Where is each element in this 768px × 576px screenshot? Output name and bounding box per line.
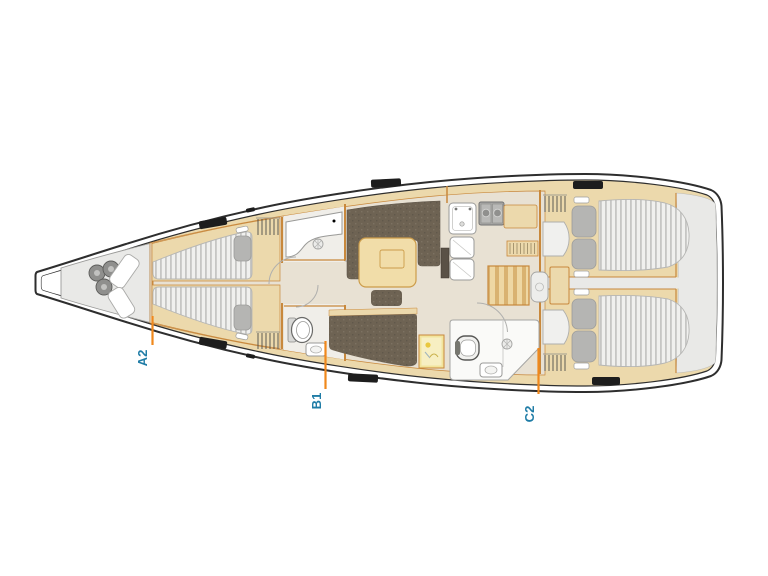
nav-desk <box>550 267 569 304</box>
pillow <box>572 331 596 362</box>
label-text-a2: A2 <box>135 350 150 367</box>
reading-light <box>574 289 589 295</box>
label-text-b1: B1 <box>309 393 324 410</box>
faucet-dot <box>333 220 336 223</box>
chart-mark <box>425 342 430 347</box>
toilet-bowl <box>461 340 476 356</box>
deck-hatch-icon <box>348 373 378 383</box>
stove-burner <box>482 209 490 217</box>
deck-hatch-icon <box>573 181 603 189</box>
double-berth-mattress <box>599 295 689 366</box>
shower-drain-icon <box>502 339 512 349</box>
sink-basin <box>311 346 322 353</box>
label-text-c2: C2 <box>522 406 537 423</box>
toilet-lid-mark <box>455 341 460 355</box>
companionway-steps <box>488 266 529 305</box>
stove-burner <box>494 209 502 217</box>
faucet-dot <box>469 208 472 211</box>
deck-hatch-icon <box>371 178 401 188</box>
vanity-seat <box>543 310 569 344</box>
salon-stool <box>371 290 402 306</box>
pillow <box>572 299 596 329</box>
deck-hatch-icon <box>592 377 620 385</box>
pillow <box>572 206 596 237</box>
pillow <box>234 305 251 330</box>
vanity-seat <box>543 222 569 256</box>
galley-cabinet-dark <box>441 248 449 278</box>
pillow <box>572 239 596 269</box>
reading-light <box>574 271 589 277</box>
pillow <box>234 236 251 261</box>
engine-vent <box>507 241 538 256</box>
shower-drain-icon <box>313 239 323 249</box>
reading-light <box>574 197 589 203</box>
nav-seat <box>531 272 548 302</box>
drain-dot <box>460 222 464 226</box>
galley-counter <box>504 205 537 228</box>
deck-plan-svg: A2 B1 C2 <box>0 0 768 576</box>
double-berth-mattress <box>599 199 689 270</box>
faucet-dot <box>455 208 458 211</box>
salon-table <box>359 238 416 287</box>
reading-light <box>574 363 589 369</box>
nav-chart-paper <box>422 338 442 366</box>
sink-basin <box>485 366 497 374</box>
yacht-layout-diagram: A2 B1 C2 <box>0 0 768 576</box>
